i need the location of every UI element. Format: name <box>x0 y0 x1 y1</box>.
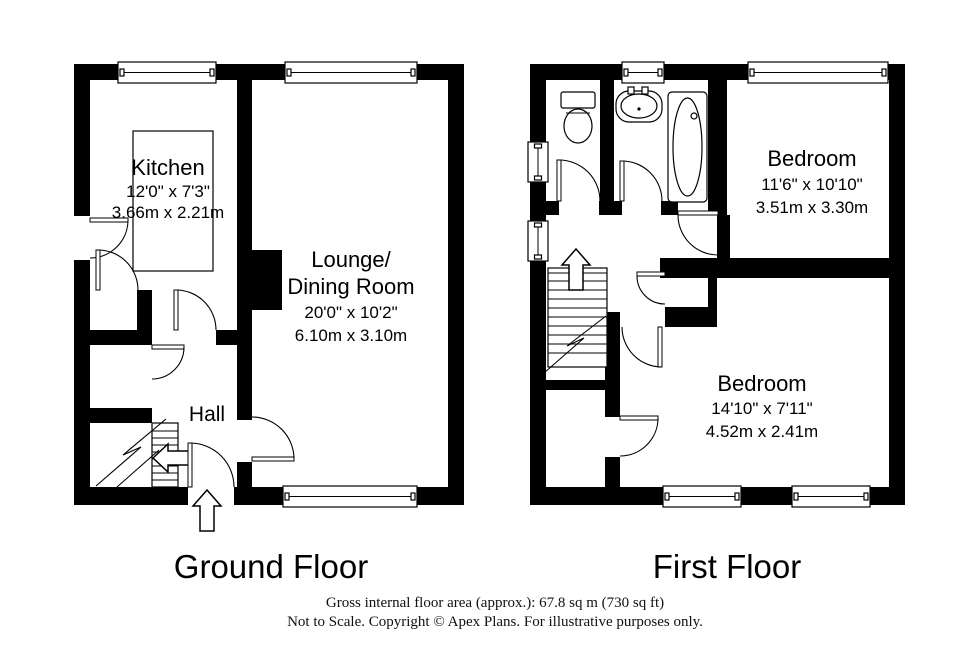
footer-copyright-text: Not to Scale. Copyright © Apex Plans. Fo… <box>287 614 703 630</box>
gf-window-lounge-rear <box>283 486 417 507</box>
gf-lounge-dims-metric: 6.10m x 3.10m <box>295 326 407 345</box>
ff-bedroom1-label: Bedroom <box>767 146 856 171</box>
gf-entrance-door <box>188 443 234 487</box>
gf-side-door-opening <box>74 216 90 260</box>
bathtub-fixture <box>668 92 707 202</box>
gf-store-room-door <box>152 345 184 379</box>
ff-bedroom1-door <box>678 211 718 255</box>
ff-window-side-upper <box>528 142 548 182</box>
gf-kitchen-dims-metric: 3.66m x 2.21m <box>112 203 224 222</box>
ground-floor-title: Ground Floor <box>174 548 368 585</box>
gf-kitchen-door <box>174 290 216 330</box>
ff-bedroom2-dims-imperial: 14'10" x 7'11" <box>711 399 812 418</box>
gf-window-kitchen <box>118 62 216 83</box>
ff-bedroom1-dims-metric: 3.51m x 3.30m <box>756 198 868 217</box>
gf-interior-walls <box>90 64 282 505</box>
gf-kitchen-dims-imperial: 12'0" x 7'3" <box>126 182 210 201</box>
footer-area-text: Gross internal floor area (approx.): 67.… <box>326 595 664 611</box>
ff-bedroom2-label: Bedroom <box>717 371 806 396</box>
footer: Gross internal floor area (approx.): 67.… <box>287 595 703 630</box>
first-floor-plan: Bedroom 11'6" x 10'10" 3.51m x 3.30m Bed… <box>528 62 905 585</box>
gf-hall-label: Hall <box>189 403 225 426</box>
first-floor-title: First Floor <box>653 548 802 585</box>
gf-lounge-dims-imperial: 20'0" x 10'2" <box>304 303 397 322</box>
ff-bedroom2-dims-metric: 4.52m x 2.41m <box>706 422 818 441</box>
gf-kitchen-counter <box>133 131 213 271</box>
gf-window-lounge-front <box>285 62 417 83</box>
ff-window-bedroom2-right <box>792 486 870 507</box>
gf-lounge-door <box>252 417 294 461</box>
sink-fixture <box>616 87 662 122</box>
ff-window-bedroom2-left <box>663 486 741 507</box>
ff-bedroom1-dims-imperial: 11'6" x 10'10" <box>761 175 862 194</box>
ff-window-bedroom1 <box>748 62 888 83</box>
gf-lounge-label-line1: Lounge/ <box>311 247 391 272</box>
ff-wc-door <box>557 160 600 201</box>
ff-window-bathroom <box>622 62 664 83</box>
ff-bedroom2-cupboard-door <box>622 327 662 367</box>
toilet-fixture <box>561 92 595 143</box>
gf-kitchen-label: Kitchen <box>131 155 204 180</box>
ff-bathroom-door <box>620 161 662 201</box>
ff-window-side-lower <box>528 221 548 261</box>
ground-floor-plan: Kitchen 12'0" x 7'3" 3.66m x 2.21m Loung… <box>74 62 464 585</box>
gf-lounge-label-line2: Dining Room <box>287 274 414 299</box>
floorplan-canvas: Kitchen 12'0" x 7'3" 3.66m x 2.21m Loung… <box>0 0 980 652</box>
ff-bedroom2-lower-door <box>620 416 658 456</box>
floorplan-page: Kitchen 12'0" x 7'3" 3.66m x 2.21m Loung… <box>0 0 980 652</box>
